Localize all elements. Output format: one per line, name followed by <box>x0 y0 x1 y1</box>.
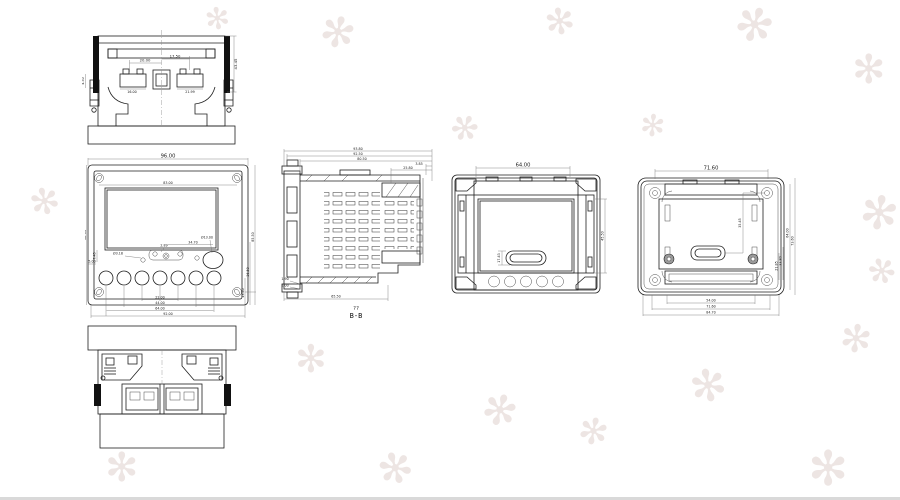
back-b-connector <box>691 246 725 260</box>
back-b-bosses <box>664 254 758 264</box>
watermark-glyph: ✻ <box>686 362 731 413</box>
dim-45-50: 45.50 <box>601 231 605 240</box>
watermark-glyph: ✻ <box>542 3 578 44</box>
back-view-a-drawing: 64.00 17.43 45.50 <box>450 155 612 305</box>
bottom-view-outline <box>88 326 236 448</box>
top-view-drawing: 17.50 20.00 16.00 21.99 43.45 4.50 <box>82 22 247 147</box>
dim-71-60: 71.60 <box>704 166 719 172</box>
dim-25-80: 25.80 <box>403 166 412 170</box>
dim-1-90: 1.90 <box>281 277 288 281</box>
dim-93-80: 93.80 <box>353 147 362 151</box>
watermark-glyph: ✻ <box>372 444 418 495</box>
back-a-outline <box>452 175 600 293</box>
back-a-dim-lines <box>476 166 607 273</box>
dim-1-00: 1.00 <box>281 284 288 288</box>
watermark-glyph: ✻ <box>852 50 886 90</box>
section-right-slots <box>417 199 422 254</box>
watermark-glyph: ✻ <box>105 448 139 488</box>
bottom-view-left-seal <box>94 384 101 406</box>
dim-80-50: 80.50 <box>357 157 366 161</box>
top-view-dim-lines <box>86 36 237 92</box>
dim-17-50: 17.50 <box>170 54 181 59</box>
watermark-glyph: ✻ <box>838 318 875 360</box>
dim-34-70: 34.70 <box>188 240 197 244</box>
front-view-drawing: 96.00 83.00 96.00 7.45 5.00 2.89 Ø3.18 Ø… <box>85 152 260 322</box>
section-vent-slots-right <box>384 201 414 249</box>
back-a-holes <box>489 276 564 287</box>
dim-chain-64: 64.00 <box>155 306 164 310</box>
bottom-view-right-seal <box>224 384 231 406</box>
dim-hole-13-00: Ø13.00 <box>201 235 213 240</box>
dim-chain-22: 22.00 <box>155 295 164 299</box>
dim-16-00: 16.00 <box>127 90 136 94</box>
watermark-glyph: ✻ <box>26 182 64 225</box>
top-view-left-seal <box>93 36 99 93</box>
watermark-glyph: ✻ <box>476 386 522 437</box>
dim-chain-84: 84.70 <box>706 311 715 315</box>
dim-chain-54: 54.00 <box>706 299 715 303</box>
dim-83-00: 83.00 <box>163 181 172 185</box>
watermark-glyph: ✻ <box>728 0 780 53</box>
front-view-switch-cluster <box>141 250 199 262</box>
back-view-b-drawing: 71.60 35.45 21.85 33.80 64.00 73.60 54.0… <box>635 163 810 326</box>
dim-4-50: 4.50 <box>82 77 85 84</box>
watermark-glyph: ✻ <box>863 251 900 293</box>
section-view-drawing: 93.80 92.50 80.50 3.85 25.80 1.90 1.00 6… <box>280 145 445 323</box>
dim-43-45: 43.45 <box>233 58 238 69</box>
dim-65-50: 65.50 <box>331 295 340 299</box>
dim-chain-92: 92.00 <box>163 312 172 316</box>
front-view-screws <box>95 174 242 297</box>
dim-17-43: 17.43 <box>497 253 501 262</box>
front-view-holes <box>99 252 223 286</box>
top-view-right-seal <box>224 36 230 93</box>
dim-chain-71: 71.60 <box>706 305 715 309</box>
dim-96-00-w: 96.00 <box>161 154 176 160</box>
dim-3-85: 3.85 <box>415 162 422 166</box>
dim-21-99: 21.99 <box>185 90 194 94</box>
bottom-view-drawing <box>82 322 244 452</box>
watermark-glyph: ✻ <box>639 111 667 143</box>
watermark-glyph: ✻ <box>808 445 848 493</box>
dim-chain-44: 44.00 <box>155 301 164 305</box>
watermark-glyph: ✻ <box>295 340 327 378</box>
dim-right-36-50: 36.50 <box>246 267 250 276</box>
section-vent-slots <box>324 189 380 271</box>
dim-73-60: 73.60 <box>791 236 795 245</box>
dim-33-80: 33.80 <box>779 256 783 265</box>
dim-5-00: 5.00 <box>88 260 95 264</box>
dim-64-00: 64.00 <box>516 163 531 169</box>
dim-64-00-r: 64.00 <box>786 228 790 237</box>
watermark-glyph: ✻ <box>856 187 900 239</box>
dim-92-50: 92.50 <box>353 152 362 156</box>
dim-35-45: 35.45 <box>738 218 742 227</box>
watermark-glyph: ✻ <box>575 412 612 453</box>
watermark-glyph: ✻ <box>444 108 484 151</box>
section-label: B-B <box>350 312 363 320</box>
watermark-glyph: ✻ <box>315 8 360 58</box>
dim-20-00: 20.00 <box>140 58 151 63</box>
dim-2-89: 2.89 <box>160 244 167 248</box>
dim-right-85-50: 85.50 <box>251 232 255 241</box>
dim-hole-3-18: Ø3.18 <box>113 251 123 256</box>
dim-right-13-40: 13.40 <box>241 288 245 297</box>
front-view-outline <box>88 165 248 305</box>
dim-96-00-h: 96.00 <box>85 229 87 240</box>
back-a-connector <box>506 251 546 265</box>
